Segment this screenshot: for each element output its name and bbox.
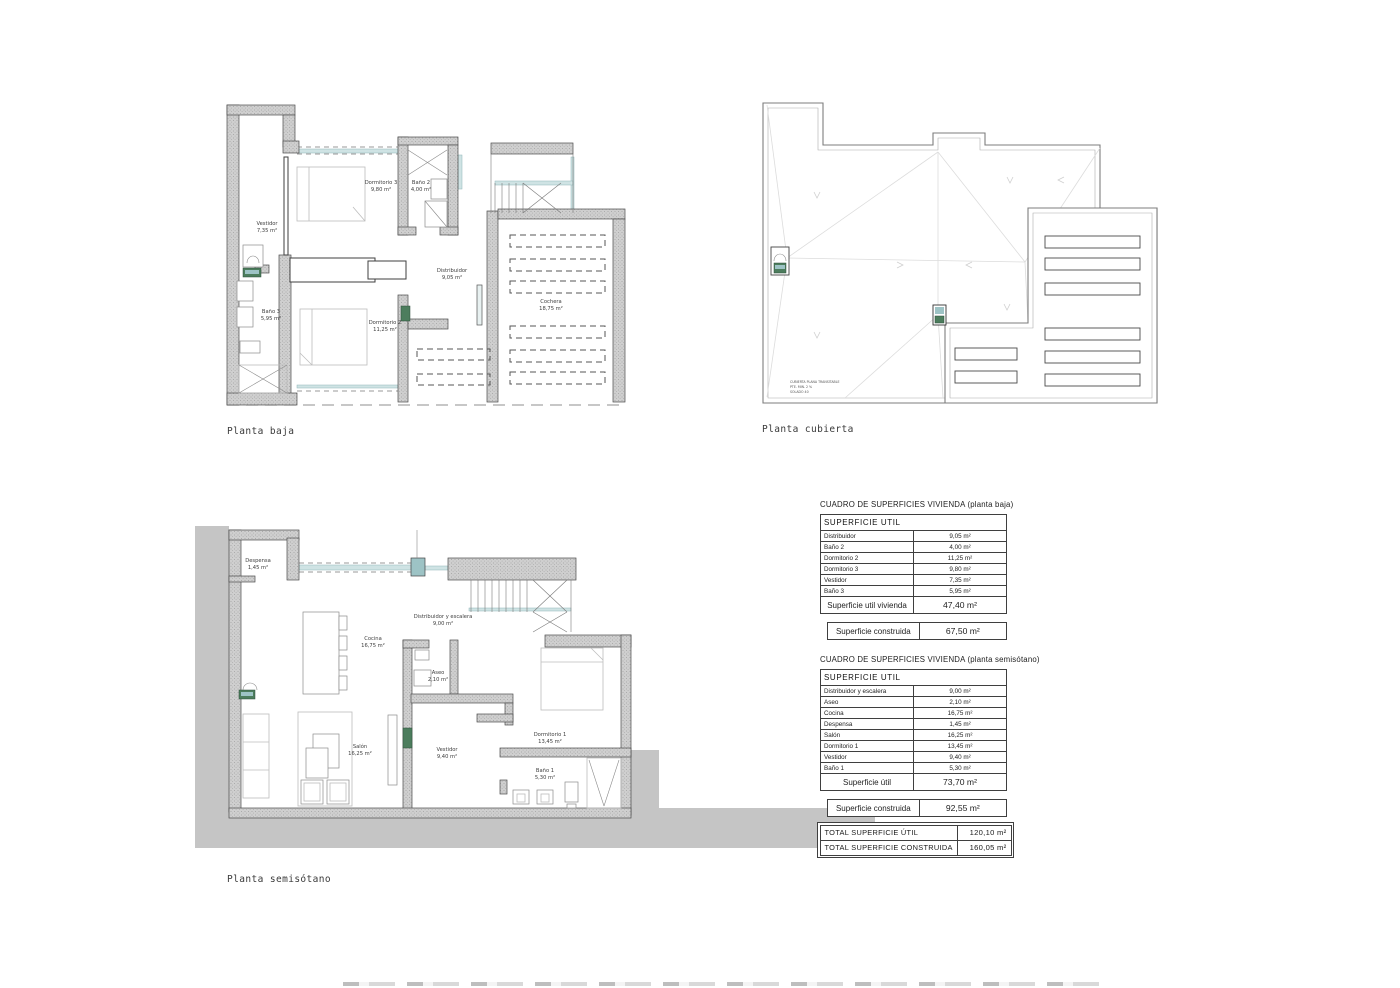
table-row: Distribuidor y escalera9,00 m² — [821, 686, 1007, 697]
plan-caption-semisotano: Planta semisótano — [227, 874, 331, 885]
subtotal-value: 73,70 m² — [914, 774, 1007, 791]
table-header: SUPERFICIE UTIL — [821, 515, 1007, 531]
total-value: 160,05 m² — [957, 840, 1011, 855]
room-area: 18,75 m² — [539, 306, 563, 312]
room-area: 9,05 m² — [442, 275, 462, 281]
room-value: 9,40 m² — [914, 752, 1007, 763]
entry-door — [411, 530, 425, 576]
total-row: TOTAL SUPERFICIE CONSTRUIDA160,05 m² — [820, 840, 1011, 855]
table-row: Dormitorio 39,80 m² — [821, 564, 1007, 575]
tv-cabinet — [388, 715, 397, 785]
vent-fixture — [933, 305, 946, 325]
plan-planta-semisotano: Despensa 1,45 m² Cocina 16,75 m² Distrib… — [195, 520, 880, 872]
bed-dormitorio-1 — [541, 648, 603, 710]
plan-caption-cubierta: Planta cubierta — [762, 424, 854, 435]
room-area: 5,30 m² — [535, 775, 555, 781]
room-label: Vestidor — [436, 747, 458, 753]
room-value: 9,80 m² — [914, 564, 1007, 575]
total-label: TOTAL SUPERFICIE CONSTRUIDA — [820, 840, 957, 855]
room-label: Despensa — [821, 719, 914, 730]
totals-table: TOTAL SUPERFICIE ÚTIL120,10 m² TOTAL SUP… — [817, 822, 1014, 858]
table-row: Aseo2,10 m² — [821, 697, 1007, 708]
garage-ramp-stripes — [417, 235, 605, 385]
table-row: Cocina16,75 m² — [821, 708, 1007, 719]
room-area: 5,95 m² — [261, 316, 281, 322]
room-area: 9,00 m² — [433, 621, 453, 627]
bathroom1-fixtures — [513, 758, 621, 808]
subtotal-label: Superficie útil — [821, 774, 914, 791]
superficie-construida-table-semisotano: Superficie construida92,55 m² — [827, 799, 1007, 817]
room-value: 9,00 m² — [914, 686, 1007, 697]
subtotal-value: 47,40 m² — [914, 597, 1007, 614]
room-label: Baño 3 — [821, 586, 914, 597]
boiler-fixture — [243, 245, 263, 277]
room-label: Baño 1 — [821, 763, 914, 774]
door-leaf — [403, 728, 412, 748]
boiler-fixture — [239, 683, 257, 699]
room-value: 9,05 m² — [914, 531, 1007, 542]
room-label: Dormitorio 2 — [821, 553, 914, 564]
total-label: TOTAL SUPERFICIE ÚTIL — [820, 825, 957, 840]
table-row: Vestidor9,40 m² — [821, 752, 1007, 763]
room-value: 1,45 m² — [914, 719, 1007, 730]
room-area: 16,75 m² — [361, 643, 385, 649]
staircase — [471, 580, 571, 632]
table-row: Dormitorio 211,25 m² — [821, 553, 1007, 564]
room-area: 2,10 m² — [428, 677, 448, 683]
room-label: Cocina — [364, 636, 382, 642]
room-value: 16,75 m² — [914, 708, 1007, 719]
room-value: 5,95 m² — [914, 586, 1007, 597]
table-row: Baño 35,95 m² — [821, 586, 1007, 597]
room-label: Cocina — [821, 708, 914, 719]
bed-dormitorio-3 — [297, 167, 365, 221]
room-area: 9,80 m² — [371, 187, 391, 193]
roof-note-line3: SOLADO 40 — [790, 390, 809, 394]
room-label: Baño 3 — [262, 309, 280, 315]
superficie-construida-table-baja: Superficie construida67,50 m² — [827, 622, 1007, 640]
sofa — [243, 714, 269, 798]
subtotal-row: Superficie util vivienda47,40 m² — [821, 597, 1007, 614]
door-leaf — [401, 306, 410, 321]
superficie-util-table-baja: SUPERFICIE UTIL Distribuidor9,05 m² Baño… — [820, 514, 1007, 614]
table-block-planta-baja: CUADRO DE SUPERFICIES VIVIENDA (planta b… — [820, 500, 1007, 640]
room-area: 13,45 m² — [538, 739, 562, 745]
room-value: 2,10 m² — [914, 697, 1007, 708]
table-row: Dormitorio 113,45 m² — [821, 741, 1007, 752]
subtotal-label: Superficie util vivienda — [821, 597, 914, 614]
table-block-planta-semisotano: CUADRO DE SUPERFICIES VIVIENDA (planta s… — [820, 655, 1007, 817]
room-label: Baño 2 — [412, 180, 430, 186]
room-label: Dormitorio 3 — [365, 180, 398, 186]
table-row: Baño 15,30 m² — [821, 763, 1007, 774]
room-label: Vestidor — [821, 752, 914, 763]
table-header: SUPERFICIE UTIL — [821, 670, 1007, 686]
built-value: 92,55 m² — [919, 800, 1006, 817]
plan-planta-cubierta: CUBIERTA PLANA TRANSITABLE PTE. MIN. 2 %… — [745, 95, 1175, 425]
subtotal-row: Superficie útil73,70 m² — [821, 774, 1007, 791]
room-label: Dormitorio 3 — [821, 564, 914, 575]
table-row: Despensa1,45 m² — [821, 719, 1007, 730]
room-label: Distribuidor — [437, 268, 468, 274]
built-surface-box: Superficie construida92,55 m² — [820, 799, 1007, 817]
room-label: Distribuidor — [821, 531, 914, 542]
room-value: 16,25 m² — [914, 730, 1007, 741]
chimney-fixture — [771, 247, 789, 275]
table-row: Salón16,25 m² — [821, 730, 1007, 741]
coffee-table-set — [298, 712, 352, 806]
bed-dormitorio-2 — [300, 309, 367, 365]
room-label: Cochera — [540, 299, 561, 305]
built-row: Superficie construida67,50 m² — [828, 623, 1007, 640]
room-area: 9,40 m² — [437, 754, 457, 760]
room-area: 4,00 m² — [411, 187, 431, 193]
total-row: TOTAL SUPERFICIE ÚTIL120,10 m² — [820, 825, 1011, 840]
room-label: Distribuidor y escalera — [414, 614, 473, 620]
room-label: Dormitorio 2 — [369, 320, 402, 326]
plan-caption-baja: Planta baja — [227, 426, 294, 437]
room-label: Vestidor — [256, 221, 278, 227]
built-label: Superficie construida — [828, 623, 920, 640]
total-value: 120,10 m² — [957, 825, 1011, 840]
room-value: 7,35 m² — [914, 575, 1007, 586]
room-area: 1,45 m² — [248, 565, 268, 571]
room-label: Baño 1 — [536, 768, 554, 774]
room-label: Distribuidor y escalera — [821, 686, 914, 697]
built-label: Superficie construida — [828, 800, 920, 817]
room-value: 13,45 m² — [914, 741, 1007, 752]
window-glazing — [299, 565, 628, 798]
scale-bar — [343, 982, 1111, 986]
room-label: Dormitorio 1 — [821, 741, 914, 752]
plan-planta-baja: Vestidor 7,35 m² Dormitorio 3 9,80 m² Ba… — [215, 95, 645, 433]
room-label: Baño 2 — [821, 542, 914, 553]
room-value: 5,30 m² — [914, 763, 1007, 774]
room-label: Aseo — [432, 670, 445, 676]
kitchen-island — [303, 612, 347, 694]
room-label: Despensa — [245, 558, 271, 564]
drawing-sheet: Vestidor 7,35 m² Dormitorio 3 9,80 m² Ba… — [0, 0, 1400, 988]
room-value: 4,00 m² — [914, 542, 1007, 553]
room-label: Aseo — [821, 697, 914, 708]
built-row: Superficie construida92,55 m² — [828, 800, 1007, 817]
table-row: Distribuidor9,05 m² — [821, 531, 1007, 542]
room-label: Vestidor — [821, 575, 914, 586]
roof-note-line2: PTE. MIN. 2 % — [790, 385, 812, 389]
table-title-semisotano: CUADRO DE SUPERFICIES VIVIENDA (planta s… — [820, 655, 1007, 664]
room-area: 16,25 m² — [348, 751, 372, 757]
table-row: Baño 24,00 m² — [821, 542, 1007, 553]
room-area: 7,35 m² — [257, 228, 277, 234]
table-row: Vestidor7,35 m² — [821, 575, 1007, 586]
built-value: 67,50 m² — [919, 623, 1006, 640]
superficie-util-table-semisotano: SUPERFICIE UTIL Distribuidor y escalera9… — [820, 669, 1007, 791]
totals-inner-table: TOTAL SUPERFICIE ÚTIL120,10 m² TOTAL SUP… — [820, 825, 1012, 856]
table-title-baja: CUADRO DE SUPERFICIES VIVIENDA (planta b… — [820, 500, 1007, 509]
room-value: 11,25 m² — [914, 553, 1007, 564]
room-area: 11,25 m² — [373, 327, 397, 333]
roof-note-line1: CUBIERTA PLANA TRANSITABLE — [790, 380, 840, 384]
room-label: Dormitorio 1 — [534, 732, 567, 738]
room-label: Salón — [353, 743, 367, 750]
room-label: Salón — [821, 730, 914, 741]
built-surface-box: Superficie construida67,50 m² — [820, 622, 1007, 640]
